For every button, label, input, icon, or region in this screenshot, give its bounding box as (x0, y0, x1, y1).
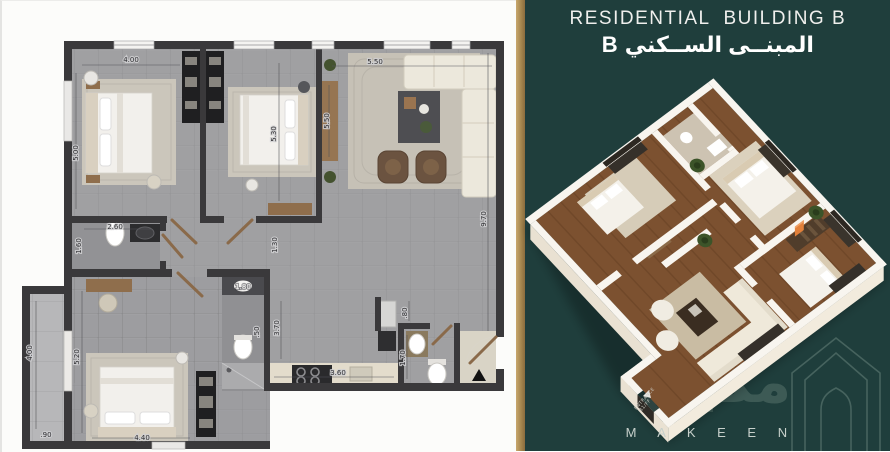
dimension-label: 3.60 (330, 369, 346, 377)
dimension-label: 1.70 (399, 350, 407, 366)
dimension-label: .80 (401, 307, 409, 318)
title-english: RESIDENTIAL BUILDING B (525, 8, 890, 30)
makeen-logo-text: M A K E E N (596, 425, 826, 440)
dimension-label: 4.40 (134, 434, 150, 442)
dimension-label: 5.50 (323, 113, 331, 129)
title-arabic: المبنــى الســكني B (525, 32, 890, 58)
floor-plan-panel: 4.005.005.305.505.509.702.601.601.301.80… (0, 0, 516, 452)
balcony-opening (64, 331, 72, 391)
panel-titles: RESIDENTIAL BUILDING B المبنــى الســكني… (525, 8, 890, 58)
dimension-label: 1.80 (235, 283, 251, 291)
plant (324, 59, 336, 71)
dimension-label: 9.70 (480, 211, 488, 227)
coffee-table (398, 91, 440, 143)
dimension-label: 5.30 (270, 126, 278, 142)
plant (324, 171, 336, 183)
dimension-label: 5.20 (73, 349, 81, 365)
brochure-page: 4.005.005.305.505.509.702.601.601.301.80… (0, 0, 890, 451)
dimension-label: 5.50 (367, 58, 383, 66)
dimension-label: 1.60 (75, 238, 83, 254)
dimension-label: 4.00 (123, 56, 139, 64)
dimension-label: 3.70 (273, 320, 281, 336)
dimension-label: 5.00 (72, 145, 80, 161)
dimension-label: 4.00 (26, 345, 34, 361)
2d-floor-plan: 4.005.005.305.505.509.702.601.601.301.80… (2, 1, 517, 452)
building-info-panel: RESIDENTIAL BUILDING B المبنــى الســكني… (516, 0, 890, 451)
dimension-label: 2.60 (107, 223, 123, 231)
dimension-label: .50 (253, 326, 261, 337)
dimension-label: 1.30 (271, 237, 279, 253)
dimension-label: .90 (40, 431, 51, 439)
master-wardrobe (196, 371, 216, 437)
